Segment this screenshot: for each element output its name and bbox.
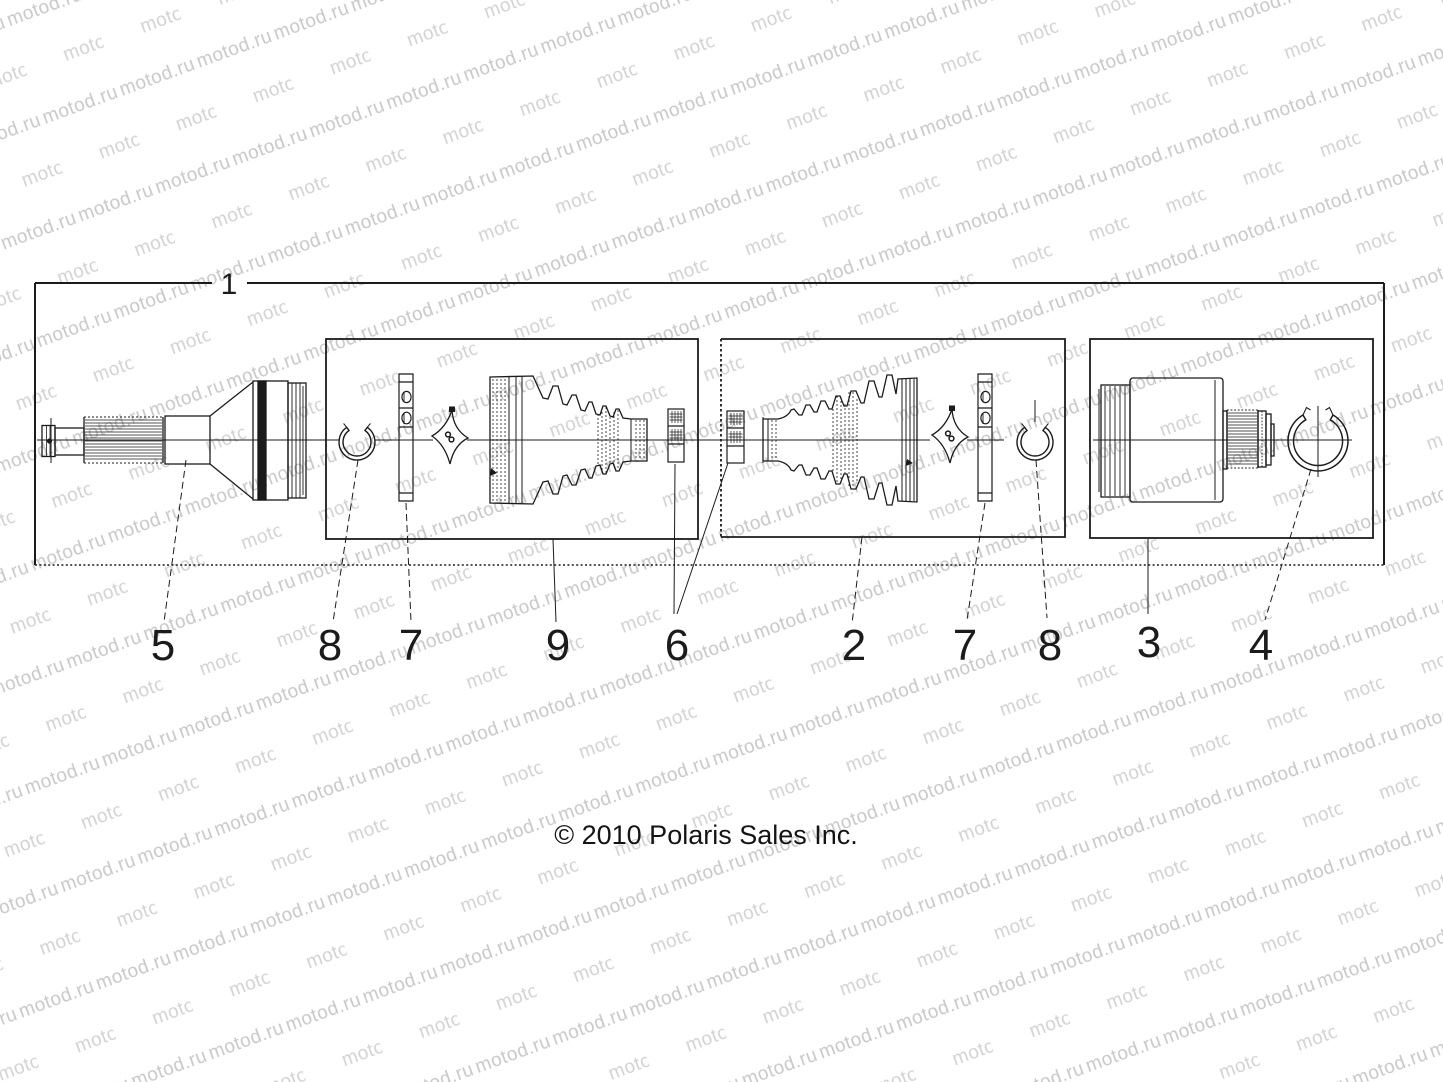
copyright-text: © 2010 Polaris Sales Inc. <box>554 820 858 850</box>
callout-5: 5 <box>151 621 175 670</box>
parts-diagram-canvas: motod.ru motod.ru <box>0 0 1443 1082</box>
callout-9: 9 <box>546 621 570 670</box>
callout-7-right: 7 <box>953 621 977 670</box>
callout-2: 2 <box>842 621 866 670</box>
callout-3: 3 <box>1137 618 1161 667</box>
callout-7-left: 7 <box>399 621 423 670</box>
watermark-layer <box>0 0 1443 1082</box>
callout-1: 1 <box>221 268 238 301</box>
callout-6: 6 <box>665 621 689 670</box>
shaft-end-pin <box>47 438 52 443</box>
callout-8-right: 8 <box>1038 621 1062 670</box>
callout-8-left: 8 <box>318 621 342 670</box>
housing-seal-band <box>258 381 266 500</box>
callout-4: 4 <box>1249 621 1273 670</box>
